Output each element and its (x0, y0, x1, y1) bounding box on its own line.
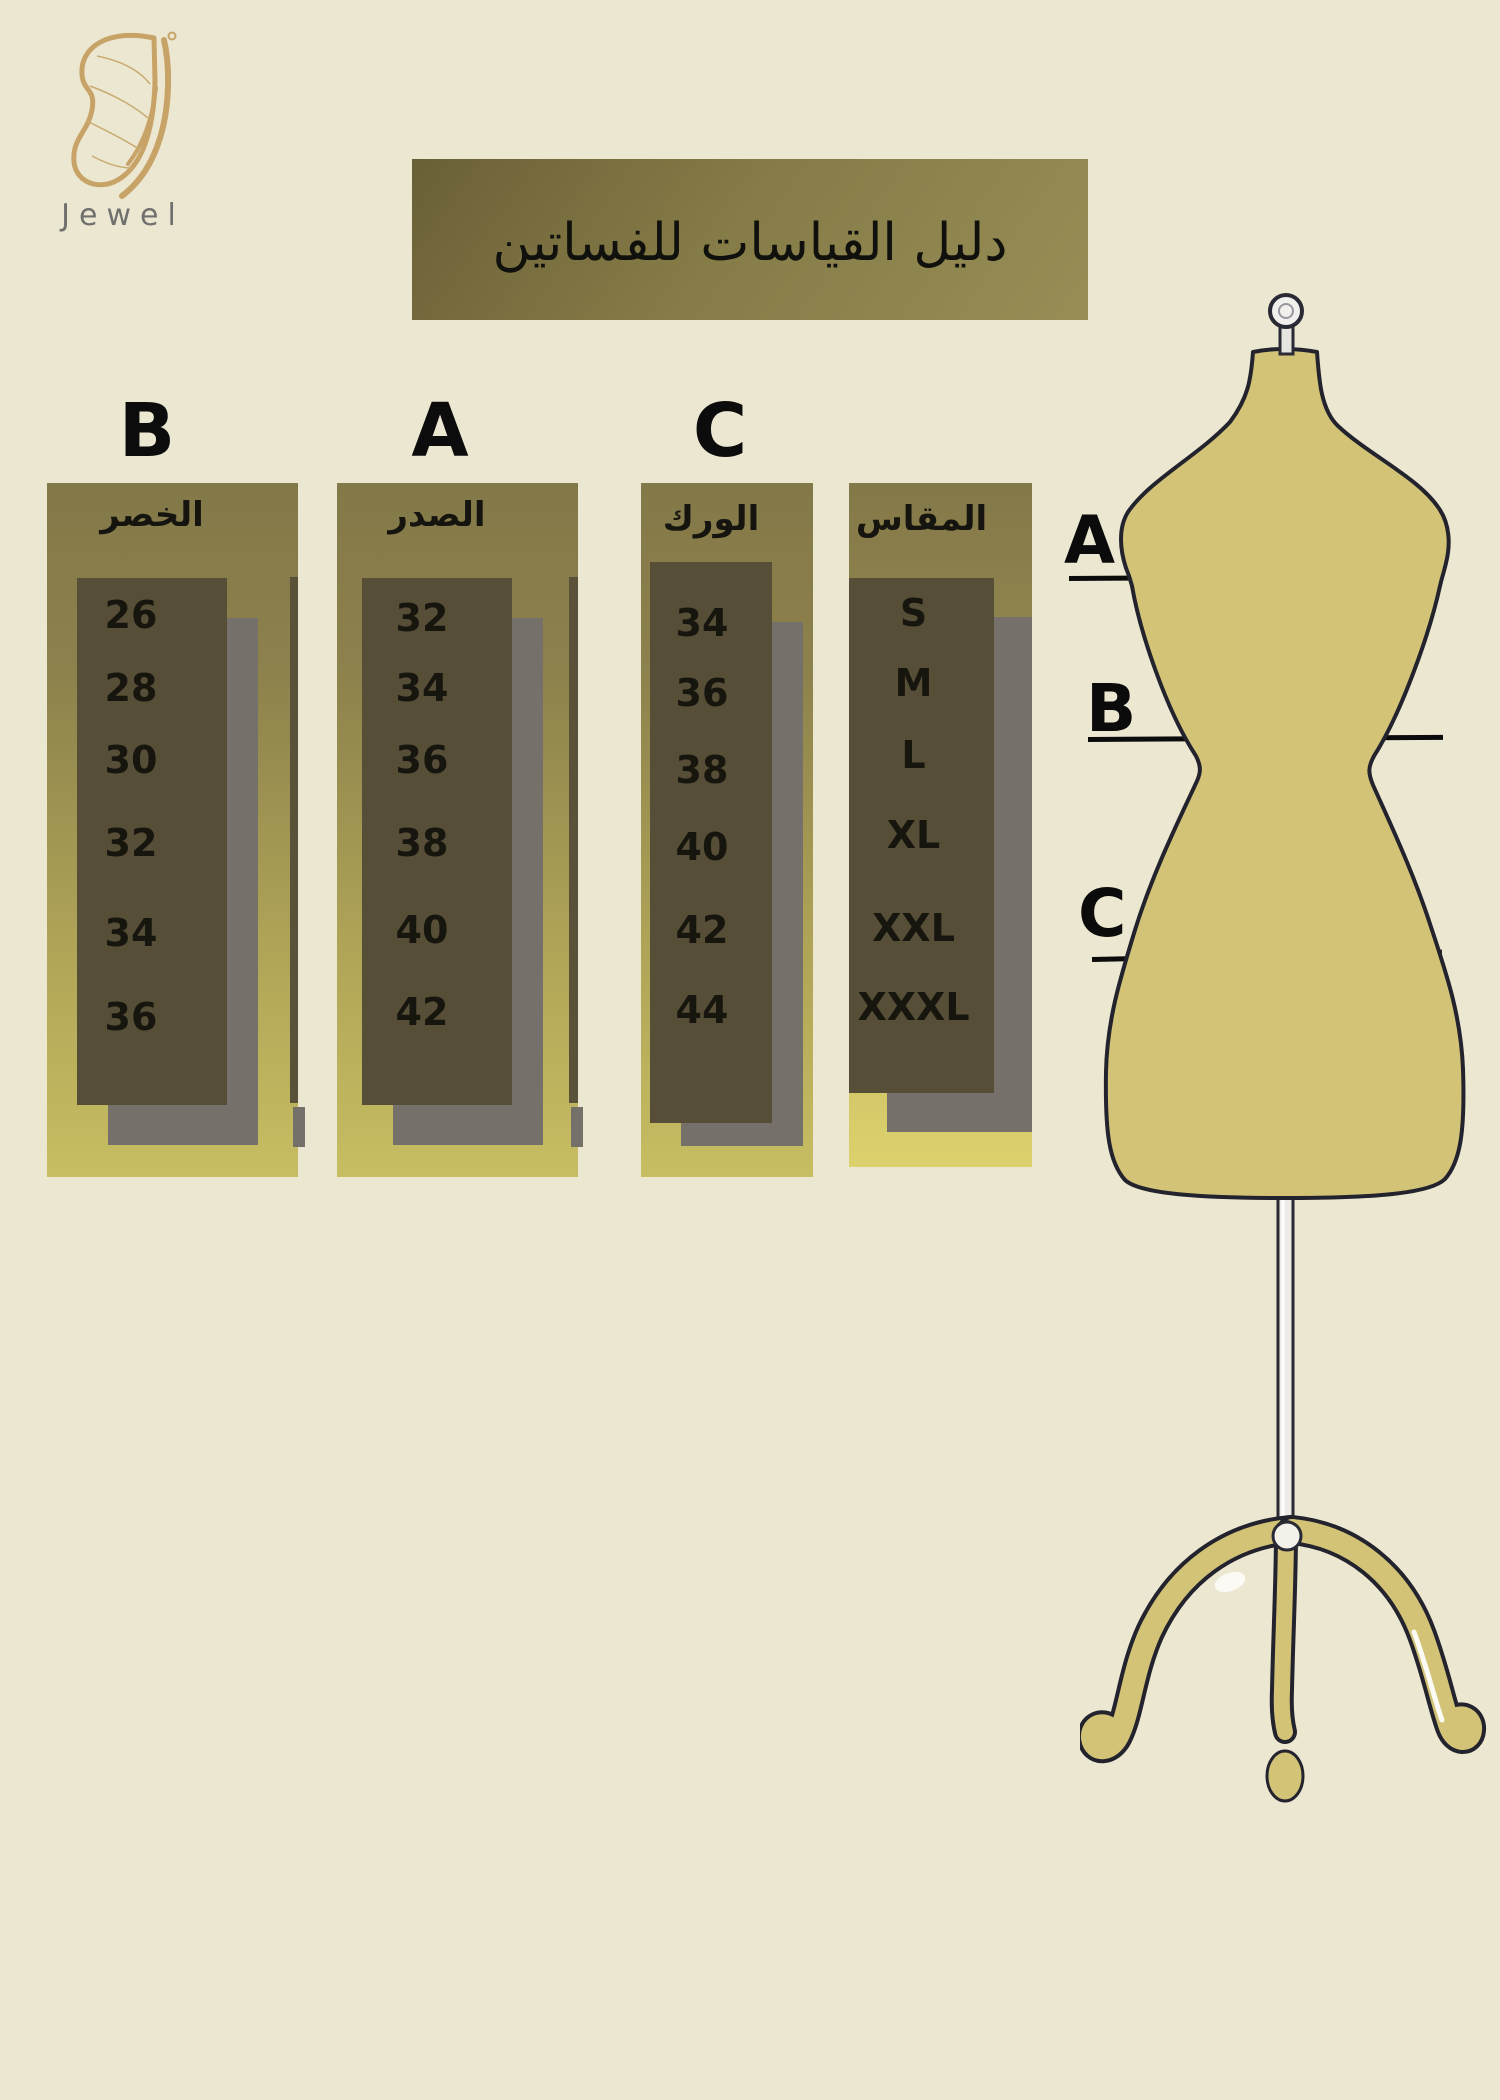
finial-knob (1270, 295, 1302, 327)
table-cell: 34 (650, 597, 772, 649)
table-header-size: المقاس (849, 499, 994, 539)
decorative-strip (569, 577, 578, 1103)
table-cell: 32 (77, 817, 227, 869)
butterfly-wing-logo-icon (52, 26, 202, 206)
table-cell: 36 (77, 991, 227, 1043)
table-cell: 36 (650, 667, 772, 719)
size-table-chest: 32 34 36 38 40 42 الصدر (337, 483, 578, 1177)
size-table-waist: 26 28 30 32 34 36 الخصر (47, 483, 298, 1177)
page-title: دليل القياسات للفساتين (412, 159, 1088, 320)
size-table-sizes: S M L XL XXL XXXL المقاس (849, 483, 1032, 1167)
column-letter-chest: A (380, 388, 500, 474)
table-cell: 32 (362, 592, 512, 644)
stand-foot (1267, 1751, 1303, 1801)
table-cell: XXL (849, 902, 994, 954)
table-cell: S (849, 587, 994, 639)
column-letter-waist: B (87, 388, 207, 474)
table-cell: XL (849, 809, 994, 861)
dress-form-body (1106, 349, 1464, 1198)
brand-name: Jewel (38, 198, 208, 233)
size-guide-page: Jewel دليل القياسات للفساتين B A C 26 28… (0, 0, 1500, 2100)
table-header-waist: الخصر (47, 495, 257, 535)
table-values-box: 26 28 30 32 34 36 (77, 578, 227, 1105)
table-cell: 30 (77, 734, 227, 786)
table-cell: 42 (650, 904, 772, 956)
table-cell: L (849, 729, 994, 781)
table-cell: 34 (362, 662, 512, 714)
decorative-strip (290, 577, 298, 1103)
decorative-strip-shadow (293, 1107, 305, 1147)
table-values-box: S M L XL XXL XXXL (849, 578, 994, 1093)
table-cell: 34 (77, 907, 227, 959)
size-table-hip: 34 36 38 40 42 44 الورك (641, 483, 813, 1177)
stand-hub-knob (1273, 1522, 1301, 1550)
table-values-box: 34 36 38 40 42 44 (650, 562, 772, 1123)
table-header-hip: الورك (641, 499, 781, 539)
table-cell: XXXL (849, 981, 994, 1033)
table-cell: 40 (650, 821, 772, 873)
table-cell: 26 (77, 589, 227, 641)
table-cell: 42 (362, 986, 512, 1038)
table-values-box: 32 34 36 38 40 42 (362, 578, 512, 1105)
table-cell: 38 (362, 817, 512, 869)
table-cell: 40 (362, 904, 512, 956)
table-cell: 38 (650, 744, 772, 796)
table-cell: 28 (77, 662, 227, 714)
dress-form-illustration (1080, 280, 1500, 1830)
table-cell: 36 (362, 734, 512, 786)
table-header-chest: الصدر (337, 495, 537, 535)
title-banner: دليل القياسات للفساتين (412, 159, 1088, 320)
table-cell: 44 (650, 984, 772, 1036)
stand-tripod (1092, 1522, 1471, 1801)
column-letter-hip: C (660, 388, 780, 474)
table-cell: M (849, 657, 994, 709)
stand-pole (1278, 1178, 1293, 1534)
decorative-strip-shadow (571, 1107, 583, 1147)
